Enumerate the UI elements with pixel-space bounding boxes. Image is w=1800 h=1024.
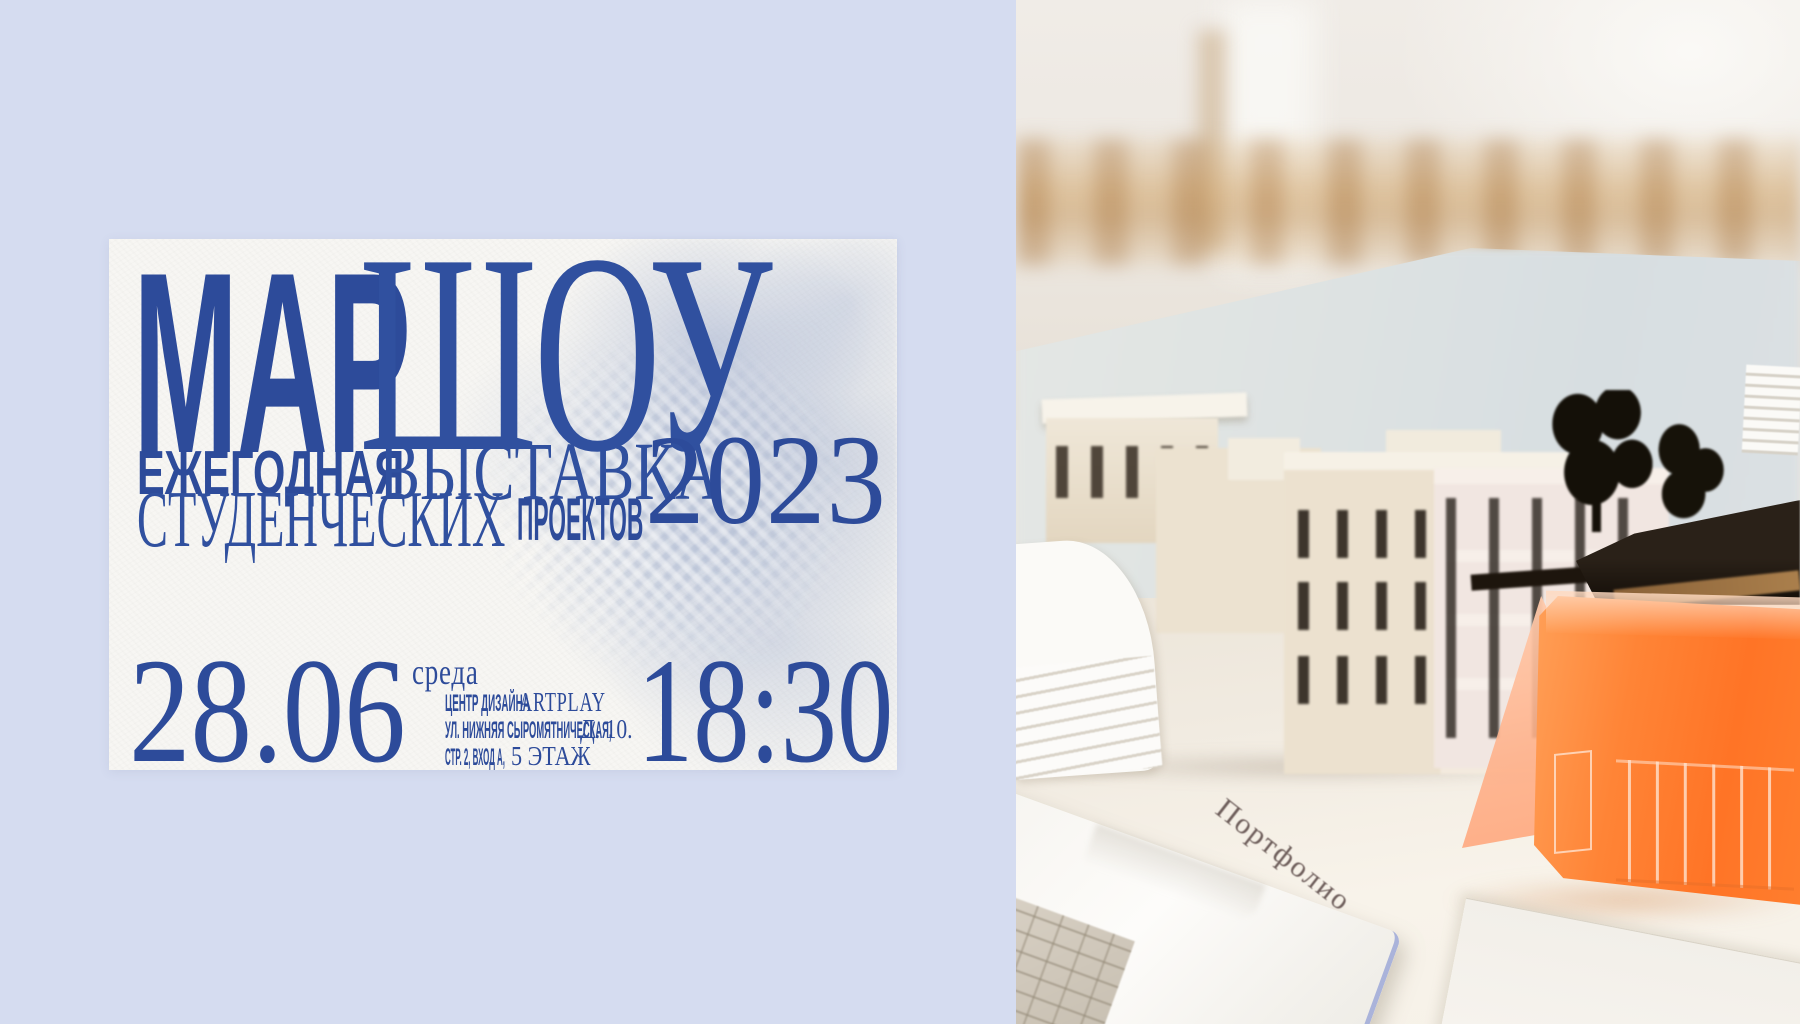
- orange-house-windows: [1616, 759, 1794, 890]
- venue-house-number: Д. 10.: [580, 716, 633, 743]
- subtitle-student: СТУДЕНЧЕСКИХ: [137, 480, 505, 560]
- tree-silhouette-large: [1540, 390, 1658, 532]
- venue-design-center: ЦЕНТР ДИЗАЙНА: [445, 692, 530, 716]
- time-label: 18:30: [637, 636, 893, 786]
- venue-artplay: ARTPLAY: [519, 689, 606, 716]
- venue-building-entrance: СТР. 2, ВХОД А,: [445, 746, 505, 770]
- paper-stack-fanned-edges: [1016, 656, 1163, 781]
- venue-floor: 5 ЭТАЖ: [511, 743, 590, 770]
- photo-blurred-models-shelf: [1016, 138, 1800, 266]
- subtitle-projects: ПРОЕКТОВ: [517, 490, 643, 550]
- year-label: 2023: [645, 416, 887, 544]
- orange-house-roof-highlight: [1546, 591, 1800, 640]
- date-label: 28.06: [129, 636, 406, 786]
- orange-house-door: [1554, 750, 1592, 854]
- event-poster-card: МАР ШОУ ЕЖЕГОДНАЯ ВЫСТАВКА СТУДЕНЧЕСКИХ …: [109, 239, 897, 770]
- weekday-label: среда: [412, 654, 479, 690]
- paper-stack-right: [1742, 365, 1800, 456]
- exhibition-photo: Портфолио: [1016, 0, 1800, 1024]
